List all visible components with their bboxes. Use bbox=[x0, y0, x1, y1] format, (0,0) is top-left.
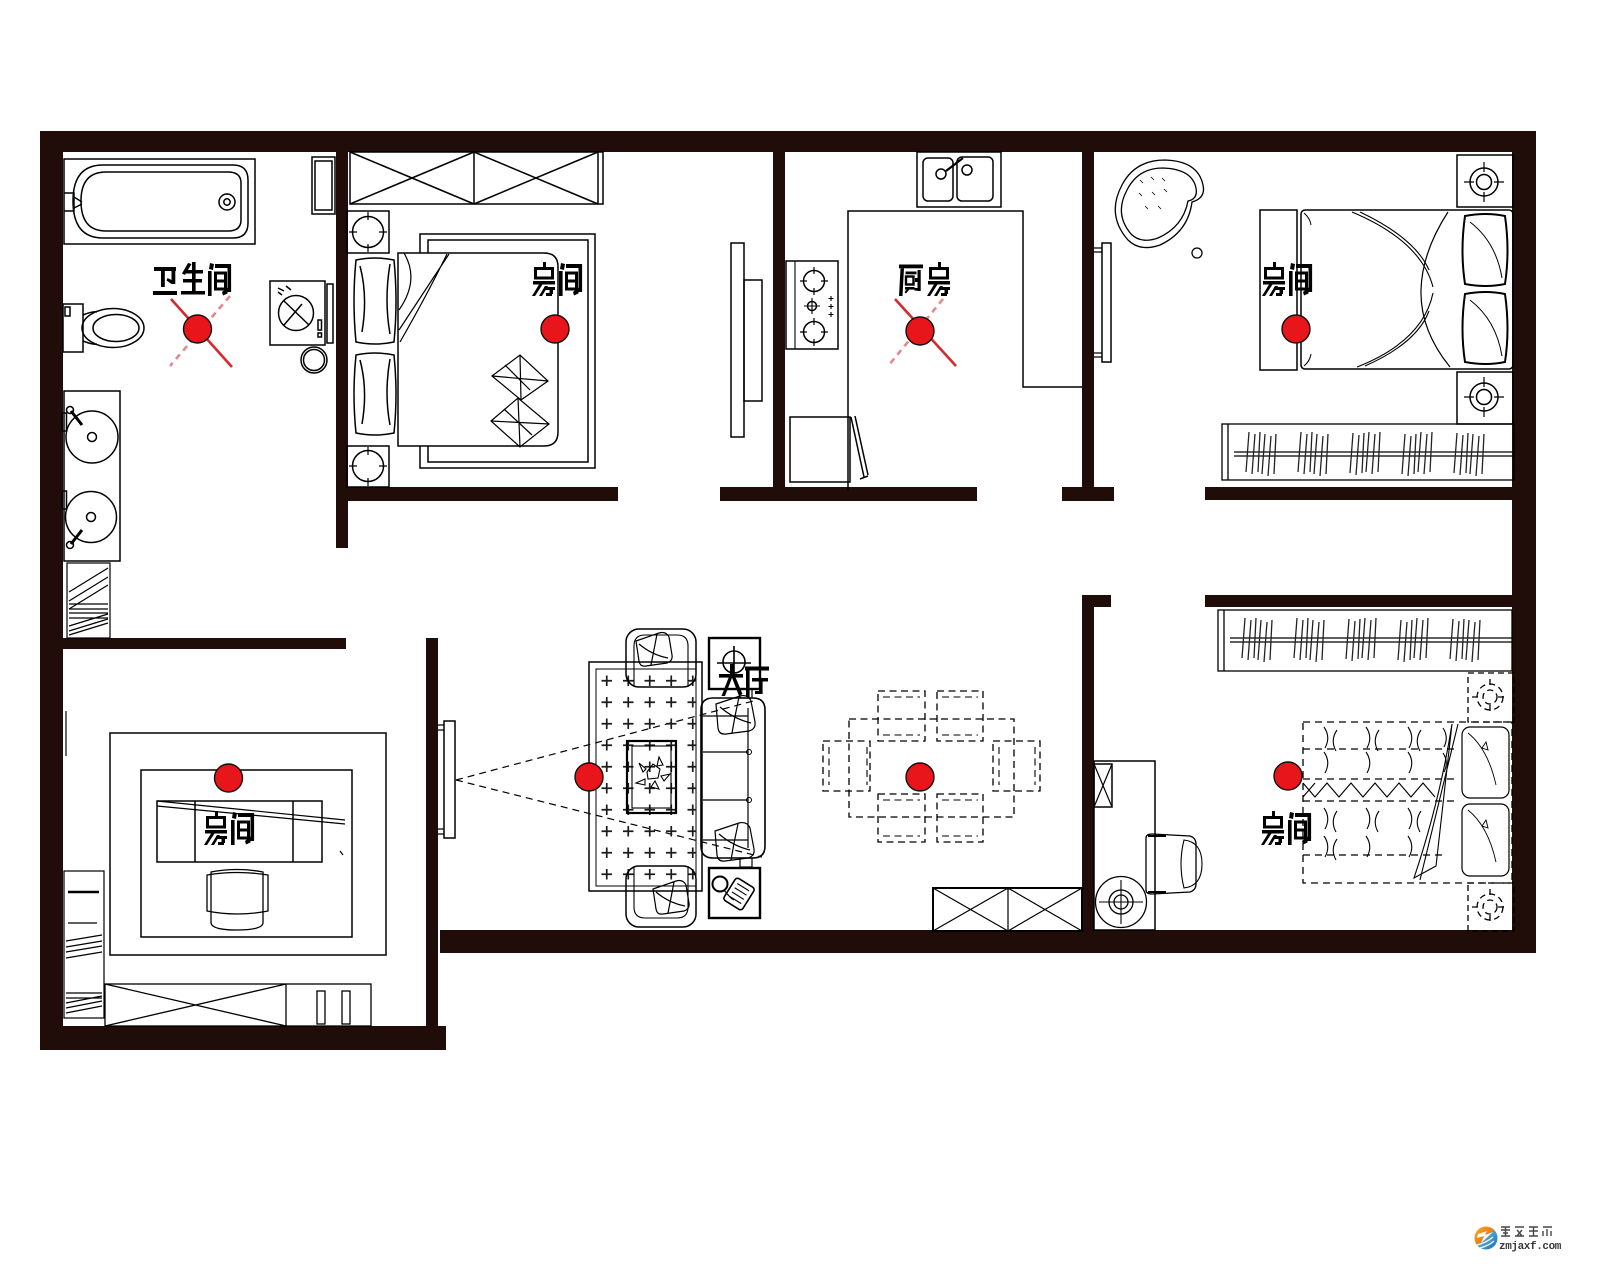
svg-text:zmjaxf.com: zmjaxf.com bbox=[1499, 1241, 1562, 1253]
